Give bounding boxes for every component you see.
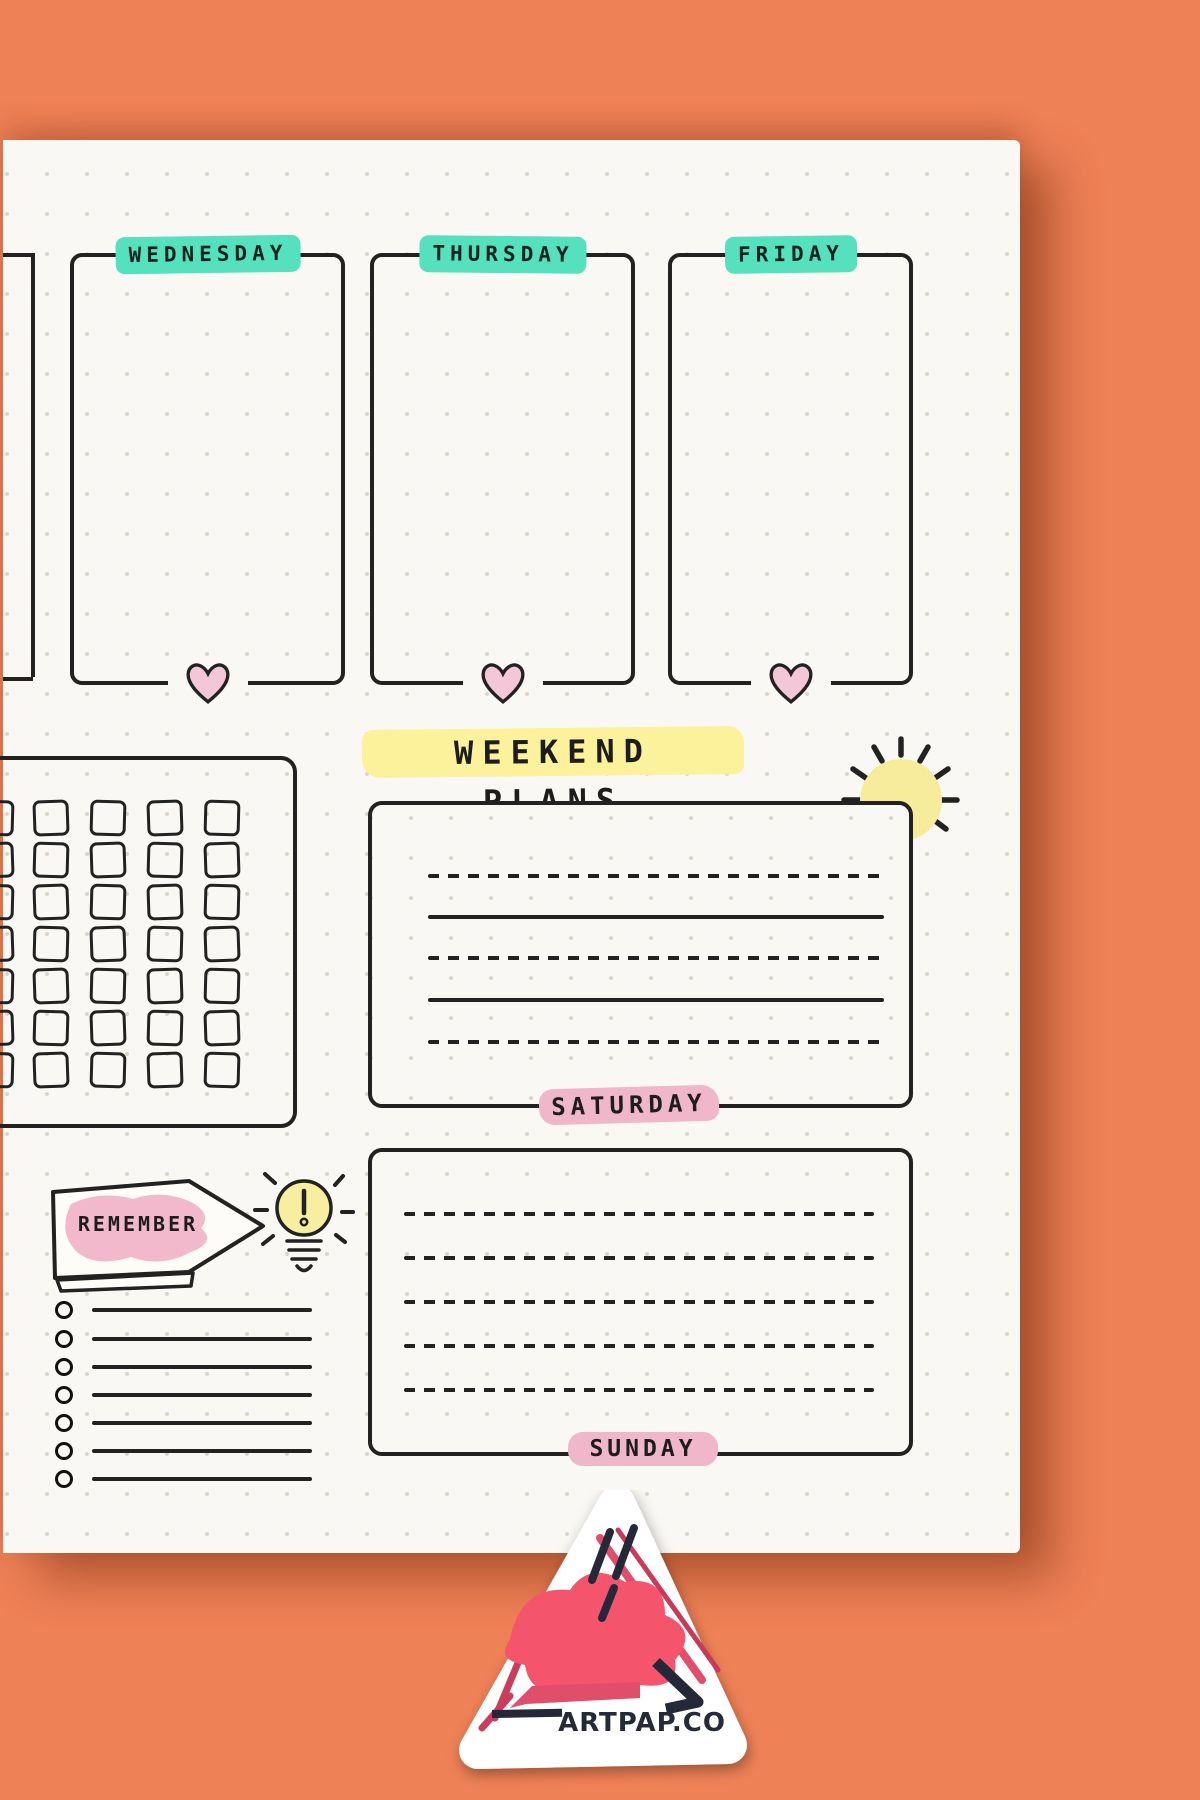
- logo-text: ARTPAP.CO: [558, 1708, 726, 1738]
- checklist-bullet: [55, 1470, 73, 1488]
- habit-checkbox: [0, 968, 14, 1005]
- heart-icon: [768, 661, 814, 705]
- sunday-writing-line: [404, 1344, 874, 1348]
- lightbulb-icon: [251, 1158, 361, 1303]
- day-column-thursday: THURSDAY: [370, 253, 635, 685]
- day-label-wednesday: WEDNESDAY: [115, 235, 300, 275]
- habit-checkbox: [90, 968, 127, 1005]
- habit-checkbox: [146, 1051, 183, 1088]
- habit-checkbox: [90, 884, 127, 921]
- habit-checkbox: [89, 925, 126, 962]
- artpap-logo-sticker: ARTPAP.CO: [440, 1490, 760, 1800]
- saturday-writing-line: [428, 915, 884, 919]
- habit-checkbox: [0, 1009, 15, 1046]
- day-label-thursday: THURSDAY: [419, 235, 587, 274]
- habit-checkbox: [32, 883, 69, 920]
- sunday-label: SUNDAY: [568, 1432, 718, 1466]
- remember-label: REMEMBER: [58, 1212, 218, 1236]
- checklist-line: [92, 1308, 312, 1312]
- habit-checkbox: [147, 842, 184, 879]
- habit-checkbox: [0, 925, 15, 962]
- saturday-writing-line: [428, 956, 884, 960]
- sunday-writing-line: [404, 1256, 874, 1260]
- saturday-box: [368, 801, 913, 1108]
- habit-checkbox: [32, 799, 69, 836]
- saturday-writing-line: [428, 874, 884, 878]
- planner-product-image: WEDNESDAY THURSDAY FRIDAY WEEKEND PLANS: [0, 0, 1200, 1800]
- sunday-box: [368, 1148, 913, 1456]
- habit-checkbox: [147, 926, 184, 963]
- weekend-plans-title: WEEKEND PLANS: [362, 726, 744, 778]
- habit-checkbox: [33, 842, 70, 879]
- habit-checkbox: [146, 883, 183, 920]
- habit-checkbox: [90, 1052, 127, 1089]
- day-column-wednesday: WEDNESDAY: [70, 253, 345, 685]
- heart-icon: [480, 661, 526, 705]
- partial-day-column-edge: [31, 253, 35, 677]
- habit-checkbox: [146, 799, 183, 836]
- day-column-friday: FRIDAY: [668, 253, 913, 685]
- checklist-bullet: [55, 1414, 73, 1432]
- saturday-writing-line: [428, 1040, 884, 1044]
- habit-checkbox: [33, 1010, 70, 1047]
- habit-checkbox: [0, 1052, 14, 1089]
- checklist-bullet: [55, 1442, 73, 1460]
- day-label-friday: FRIDAY: [724, 235, 856, 274]
- habit-checkbox: [204, 884, 241, 921]
- habit-checkbox: [204, 800, 241, 837]
- habit-checkbox: [32, 967, 69, 1004]
- habit-checkbox: [89, 1009, 126, 1046]
- checklist-line: [92, 1477, 312, 1481]
- habit-checkbox: [147, 1010, 184, 1047]
- habit-checkbox: [203, 841, 240, 878]
- checklist-bullet: [55, 1301, 73, 1319]
- checklist-line: [92, 1449, 312, 1453]
- saturday-label: SATURDAY: [539, 1084, 720, 1125]
- habit-checkbox: [0, 800, 14, 837]
- checklist-bullet: [55, 1358, 73, 1376]
- checklist-line: [92, 1365, 312, 1369]
- checklist-bullet: [55, 1330, 73, 1348]
- checklist-line: [92, 1393, 312, 1397]
- checklist-line: [92, 1421, 312, 1425]
- habit-checkbox: [204, 1052, 241, 1089]
- partial-day-column-top: [3, 253, 33, 257]
- planner-page: WEDNESDAY THURSDAY FRIDAY WEEKEND PLANS: [3, 140, 1020, 1553]
- habit-checkbox: [32, 1051, 69, 1088]
- sunday-writing-line: [404, 1388, 874, 1392]
- habit-checkbox: [203, 925, 240, 962]
- partial-day-column-bottom: [3, 677, 33, 681]
- habit-checkbox: [203, 1009, 240, 1046]
- checklist-bullet: [55, 1386, 73, 1404]
- checklist-line: [92, 1337, 312, 1341]
- habit-checkbox: [33, 926, 70, 963]
- heart-icon: [185, 661, 231, 705]
- saturday-writing-line: [428, 998, 884, 1002]
- habit-checkbox: [146, 967, 183, 1004]
- habit-checkbox: [0, 884, 14, 921]
- sunday-writing-line: [404, 1212, 874, 1216]
- habit-checkbox: [0, 841, 15, 878]
- habit-checkbox: [204, 968, 241, 1005]
- habit-checkbox: [89, 841, 126, 878]
- habit-checkbox: [90, 800, 127, 837]
- sunday-writing-line: [404, 1300, 874, 1304]
